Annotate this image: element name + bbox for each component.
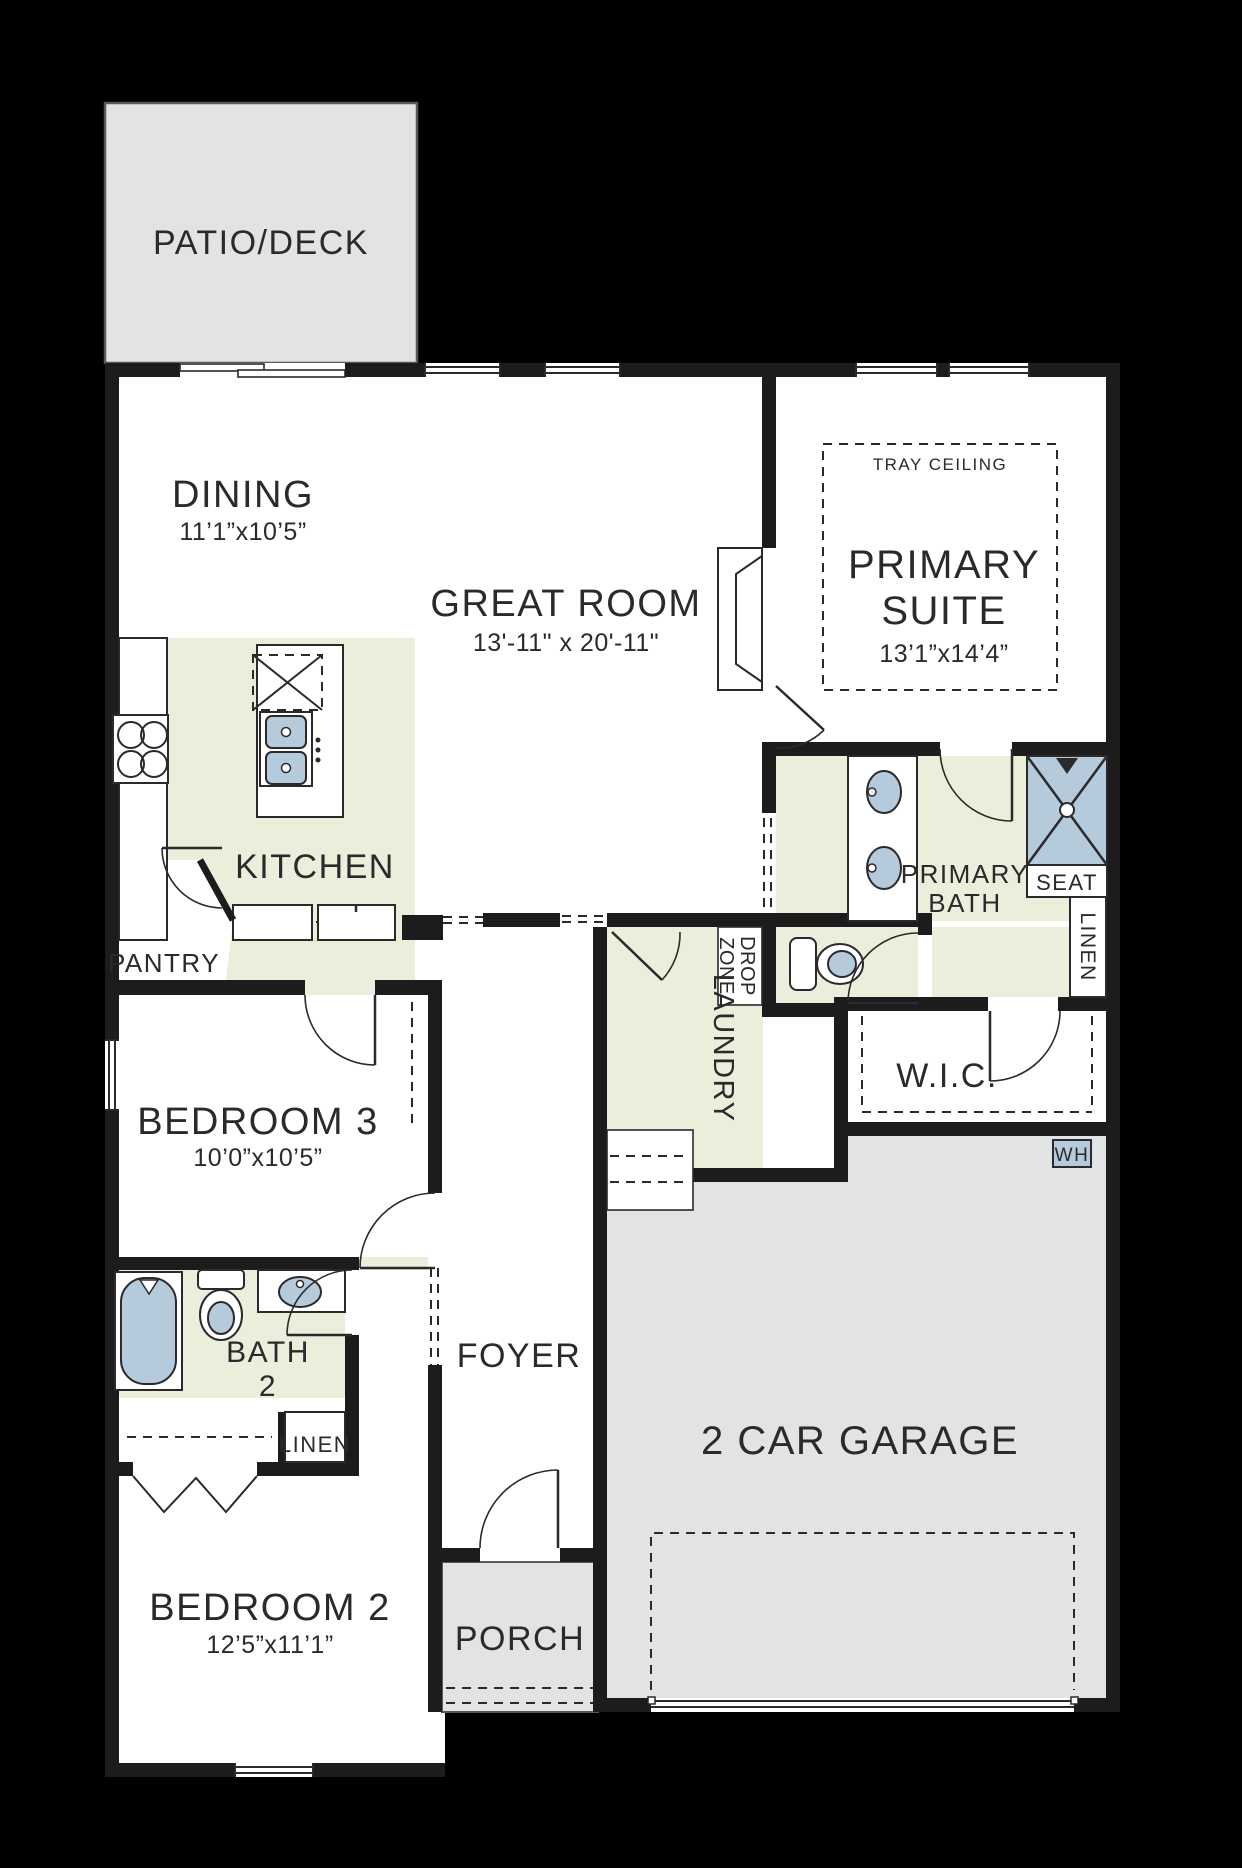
- primary-bath-label2: BATH: [928, 888, 1001, 918]
- floor-plan-drawing: PATIO/DECK DINING 11’1”x10’5” GREAT ROOM…: [0, 0, 1242, 1868]
- bathtub: [115, 1272, 182, 1390]
- porch-label: PORCH: [455, 1620, 585, 1658]
- garage-door: [648, 1697, 1078, 1712]
- patio-label: PATIO/DECK: [153, 224, 369, 262]
- dining-label: DINING: [172, 474, 314, 516]
- kitchen-island: [253, 645, 343, 817]
- bath2-label2: 2: [259, 1370, 277, 1403]
- double-vanity: [848, 756, 917, 921]
- wh-label: WH: [1055, 1145, 1090, 1166]
- garage-label: 2 CAR GARAGE: [701, 1419, 1019, 1463]
- south-counter: [233, 905, 312, 940]
- kitchen-sink: [260, 712, 321, 786]
- linen2-label: LINEN: [279, 1432, 351, 1457]
- primary-bath-label1: PRIMARY: [901, 859, 1030, 889]
- kitchen-label: KITCHEN: [235, 848, 395, 886]
- window: [105, 1040, 119, 1110]
- great-room-label: GREAT ROOM: [430, 583, 701, 625]
- primary-linen-label: LINEN: [1076, 912, 1099, 981]
- primary-suite-label2: SUITE: [881, 589, 1006, 633]
- bath2-label1: BATH: [226, 1336, 310, 1369]
- bedroom2-dims: 12’5”x11’1”: [206, 1631, 333, 1659]
- floor-plan-page: PATIO/DECK DINING 11’1”x10’5” GREAT ROOM…: [0, 0, 1242, 1868]
- wic-label: W.I.C.: [896, 1057, 998, 1095]
- media-niche: [718, 548, 762, 690]
- bedroom3-dims: 10’0”x10’5”: [193, 1144, 322, 1172]
- tray-ceiling-label: TRAY CEILING: [873, 455, 1008, 474]
- great-room-dims: 13'-11" x 20'-11": [473, 629, 659, 657]
- sliding-door: [180, 363, 345, 377]
- toilet: [198, 1270, 244, 1340]
- cooktop: [113, 715, 168, 783]
- pantry-label: PANTRY: [108, 948, 220, 978]
- foyer-label: FOYER: [457, 1337, 582, 1375]
- laundry-label: LAUNDRY: [707, 974, 739, 1123]
- garage-steps: [607, 1130, 693, 1210]
- primary-suite-dims: 13’1”x14’4”: [879, 640, 1008, 668]
- primary-suite-label1: PRIMARY: [848, 543, 1040, 587]
- shower: [1027, 756, 1107, 865]
- refrigerator: [318, 905, 395, 940]
- garage-area: [607, 1136, 1106, 1698]
- bedroom2-label: BEDROOM 2: [149, 1587, 391, 1629]
- dining-dims: 11’1”x10’5”: [179, 518, 306, 546]
- bedroom3-label: BEDROOM 3: [137, 1101, 379, 1143]
- seat-label: SEAT: [1036, 870, 1098, 895]
- kitchen-counter: [119, 638, 167, 940]
- bath2-sink: [258, 1270, 345, 1312]
